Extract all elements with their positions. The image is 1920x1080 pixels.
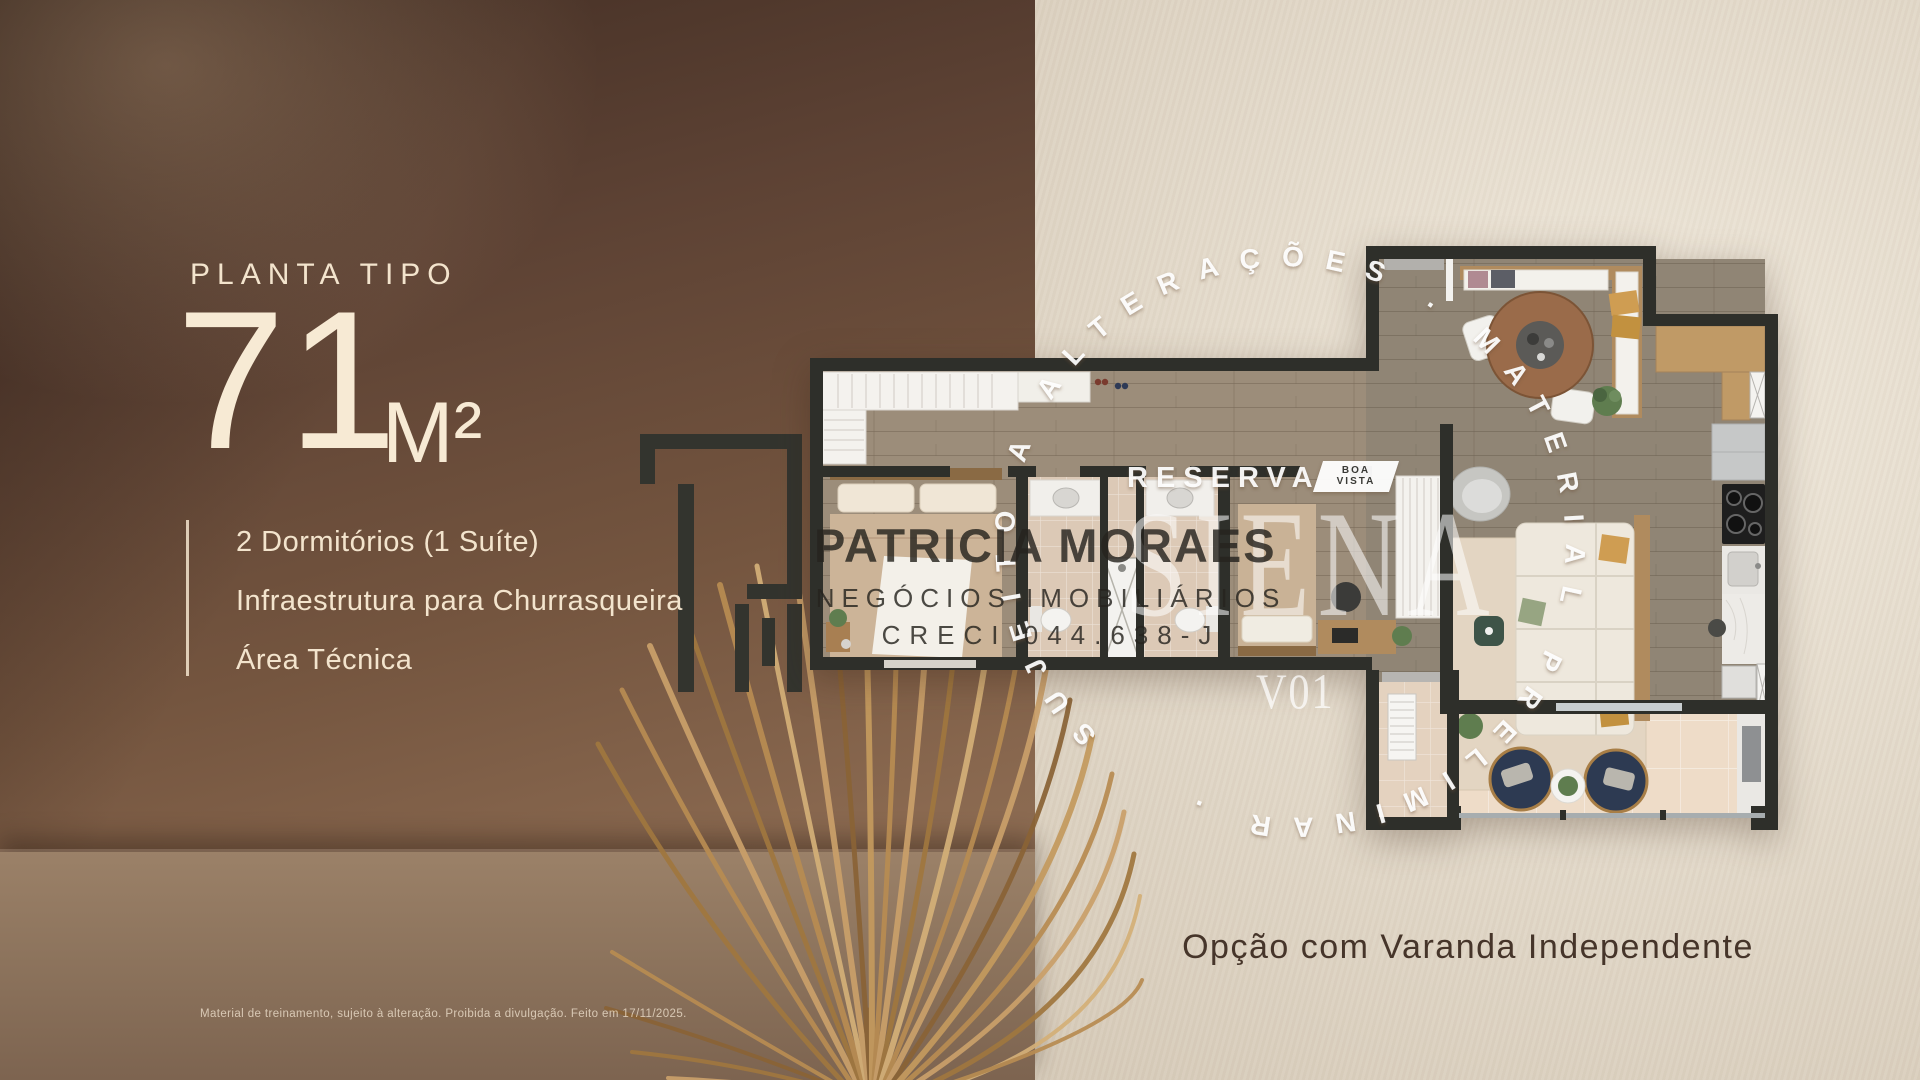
feature-rule (186, 520, 189, 676)
development-name-watermark: RESERVA (1127, 462, 1321, 495)
broker-name: PATRICIA MORAES (810, 518, 1292, 573)
training-disclaimer: Material de treinamento, sujeito à alter… (200, 1008, 687, 1020)
feature-item: Infraestrutura para Churrasqueira (236, 585, 683, 618)
badge-line-2: VISTA (1337, 477, 1376, 488)
feature-item: Área Técnica (236, 644, 412, 677)
boa-vista-badge-text: BOA VISTA (1318, 461, 1394, 492)
boa-vista-badge: BOA VISTA (1313, 461, 1399, 492)
broker-segment: NEGÓCIOS IMOBILIÁRIOS (810, 583, 1292, 614)
area-value: 71 (176, 282, 399, 479)
area-unit: M² (382, 384, 482, 483)
plan-version-watermark: V01 (1256, 662, 1334, 720)
variant-caption: Opção com Varanda Independente (1160, 928, 1776, 967)
badge-line-1: BOA (1342, 466, 1370, 477)
broker-creci: CRECI 044.638-J (810, 620, 1292, 651)
feature-item: 2 Dormitórios (1 Suíte) (236, 526, 539, 559)
marketing-slide: SUJEITO A ALTERAÇÕES . MATERIAL PRELIMIN… (0, 0, 1920, 1080)
broker-watermark: PATRICIA MORAES NEGÓCIOS IMOBILIÁRIOS CR… (810, 518, 1292, 651)
